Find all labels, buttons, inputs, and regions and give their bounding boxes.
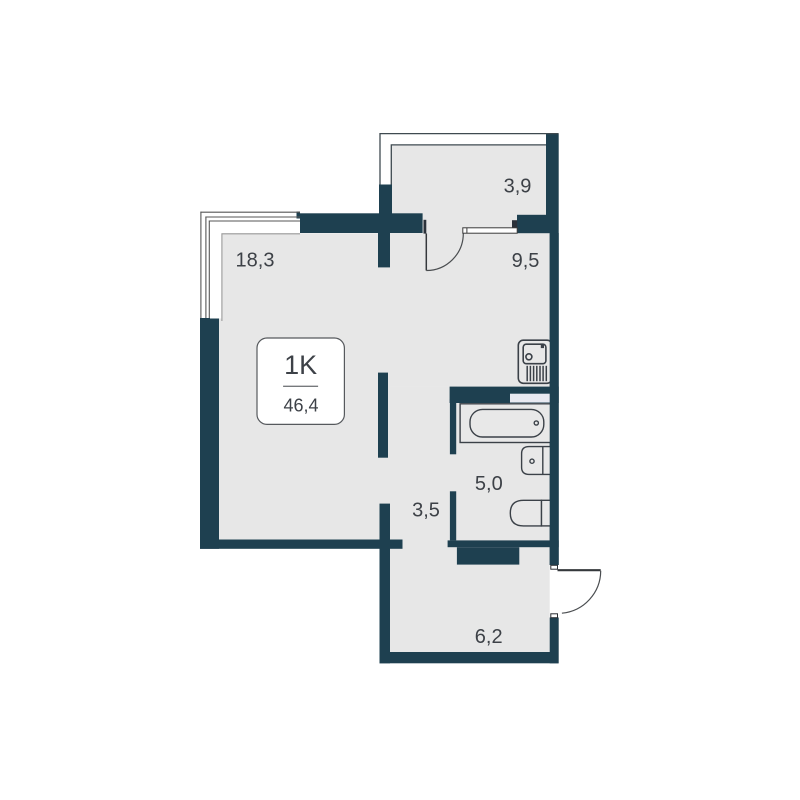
svg-text:6,2: 6,2 xyxy=(475,626,503,648)
svg-text:46,4: 46,4 xyxy=(283,395,318,415)
svg-text:5,0: 5,0 xyxy=(475,473,503,495)
svg-text:3,5: 3,5 xyxy=(412,499,440,521)
svg-text:1K: 1K xyxy=(284,350,317,380)
svg-text:3,9: 3,9 xyxy=(504,175,532,197)
svg-text:9,5: 9,5 xyxy=(512,250,540,272)
svg-text:18,3: 18,3 xyxy=(236,249,275,271)
